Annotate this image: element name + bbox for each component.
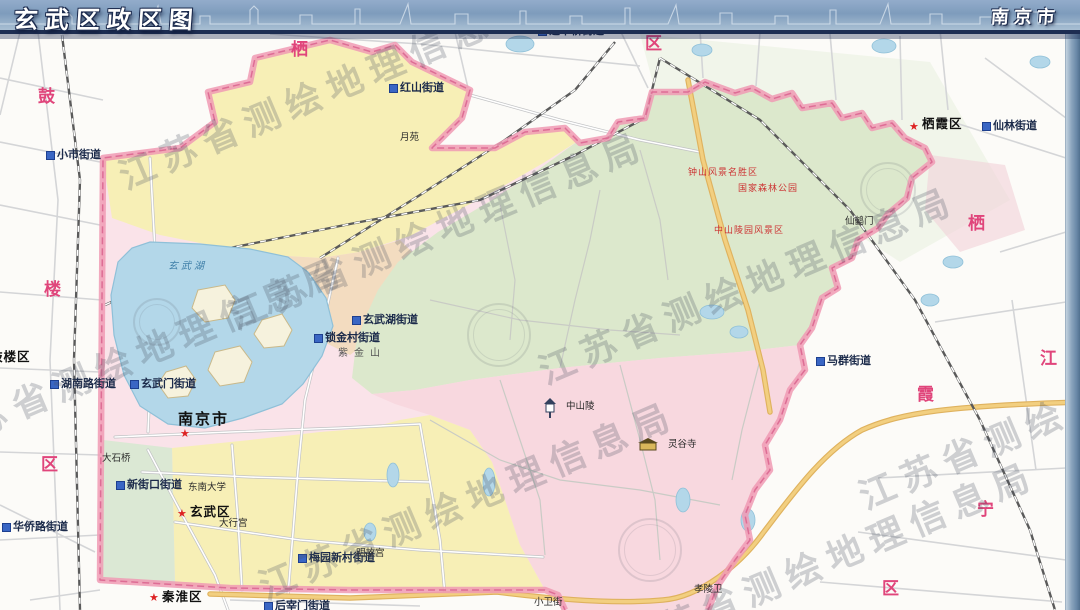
- title-bar: 玄武区政区图 南京市: [0, 0, 1080, 34]
- scenic-area-label: 中山陵园风景区: [714, 226, 784, 235]
- place-label: 大石桥: [102, 454, 131, 464]
- adjacent-district-char: 栖: [968, 215, 985, 232]
- street-label: 小市街道: [46, 150, 101, 161]
- government-icon: [46, 151, 55, 160]
- government-icon: [389, 84, 398, 93]
- street-label: 仙林街道: [982, 121, 1037, 132]
- adjacent-district-char: 宁: [977, 501, 994, 518]
- frame-strip: [1065, 30, 1080, 610]
- street-label: 华侨路街道: [2, 522, 68, 533]
- map-title: 玄武区政区图: [13, 0, 201, 35]
- district-label: 鼓楼区: [0, 351, 31, 364]
- street-label: 马群街道: [816, 356, 871, 367]
- map-canvas[interactable]: 小市街道迈皋桥街道红山街道玄武湖街道锁金村街道湖南路街道玄武门街道新街口街道梅园…: [0, 0, 1080, 610]
- place-label: 明故宫: [356, 549, 385, 559]
- street-label: 玄武门街道: [130, 379, 196, 390]
- street-label: 后宰门街道: [264, 601, 330, 610]
- street-label: 锁金村街道: [314, 333, 380, 344]
- government-star-icon: ★: [149, 593, 159, 604]
- government-icon: [314, 334, 323, 343]
- adjacent-district-char: 区: [41, 456, 58, 473]
- scenic-area-label: 国家森林公园: [738, 184, 798, 193]
- adjacent-district-char: 区: [882, 580, 899, 597]
- street-label: 玄武湖街道: [352, 315, 418, 326]
- place-label: 月苑: [400, 133, 419, 143]
- adjacent-district-char: 鼓: [38, 88, 55, 105]
- government-icon: [352, 316, 361, 325]
- street-label: 新街口街道: [116, 480, 182, 491]
- district-label: 玄武区: [190, 506, 231, 519]
- government-icon: [2, 523, 11, 532]
- government-icon: [816, 357, 825, 366]
- place-label: 小卫街: [534, 598, 563, 608]
- government-icon: [116, 481, 125, 490]
- street-label: 红山街道: [389, 83, 444, 94]
- city-name-label: 南京市: [990, 3, 1061, 29]
- adjacent-district-char: 楼: [44, 281, 61, 298]
- street-label: 湖南路街道: [50, 379, 116, 390]
- lake-label: 玄武湖: [168, 262, 207, 272]
- scenic-area-label: 钟山风景名胜区: [688, 168, 758, 177]
- place-label: 灵谷寺: [668, 440, 697, 450]
- government-icon: [264, 602, 273, 610]
- place-label: 东南大学: [188, 483, 226, 493]
- district-label: 秦淮区: [162, 591, 203, 604]
- government-icon: [298, 554, 307, 563]
- city-label: 南京市: [178, 412, 229, 427]
- government-star-icon: ★: [909, 122, 919, 133]
- district-label: 栖霞区: [922, 118, 963, 131]
- adjacent-district-char: 区: [645, 35, 662, 52]
- place-label: 孝陵卫: [694, 585, 723, 595]
- place-label: 大行宫: [219, 519, 248, 529]
- government-star-icon: ★: [177, 509, 187, 520]
- government-star-icon: ★: [180, 429, 190, 440]
- page: 小市街道迈皋桥街道红山街道玄武湖街道锁金村街道湖南路街道玄武门街道新街口街道梅园…: [0, 0, 1080, 610]
- mountain-label: 紫金山: [338, 349, 386, 359]
- government-icon: [50, 380, 59, 389]
- adjacent-district-char: 栖: [291, 41, 308, 58]
- map-image: [0, 0, 1080, 610]
- government-icon: [982, 122, 991, 131]
- place-label: 仙鹤门: [845, 217, 874, 227]
- government-icon: [130, 380, 139, 389]
- place-label: 中山陵: [566, 402, 595, 412]
- adjacent-district-char: 霞: [917, 386, 934, 403]
- adjacent-district-char: 江: [1040, 350, 1057, 367]
